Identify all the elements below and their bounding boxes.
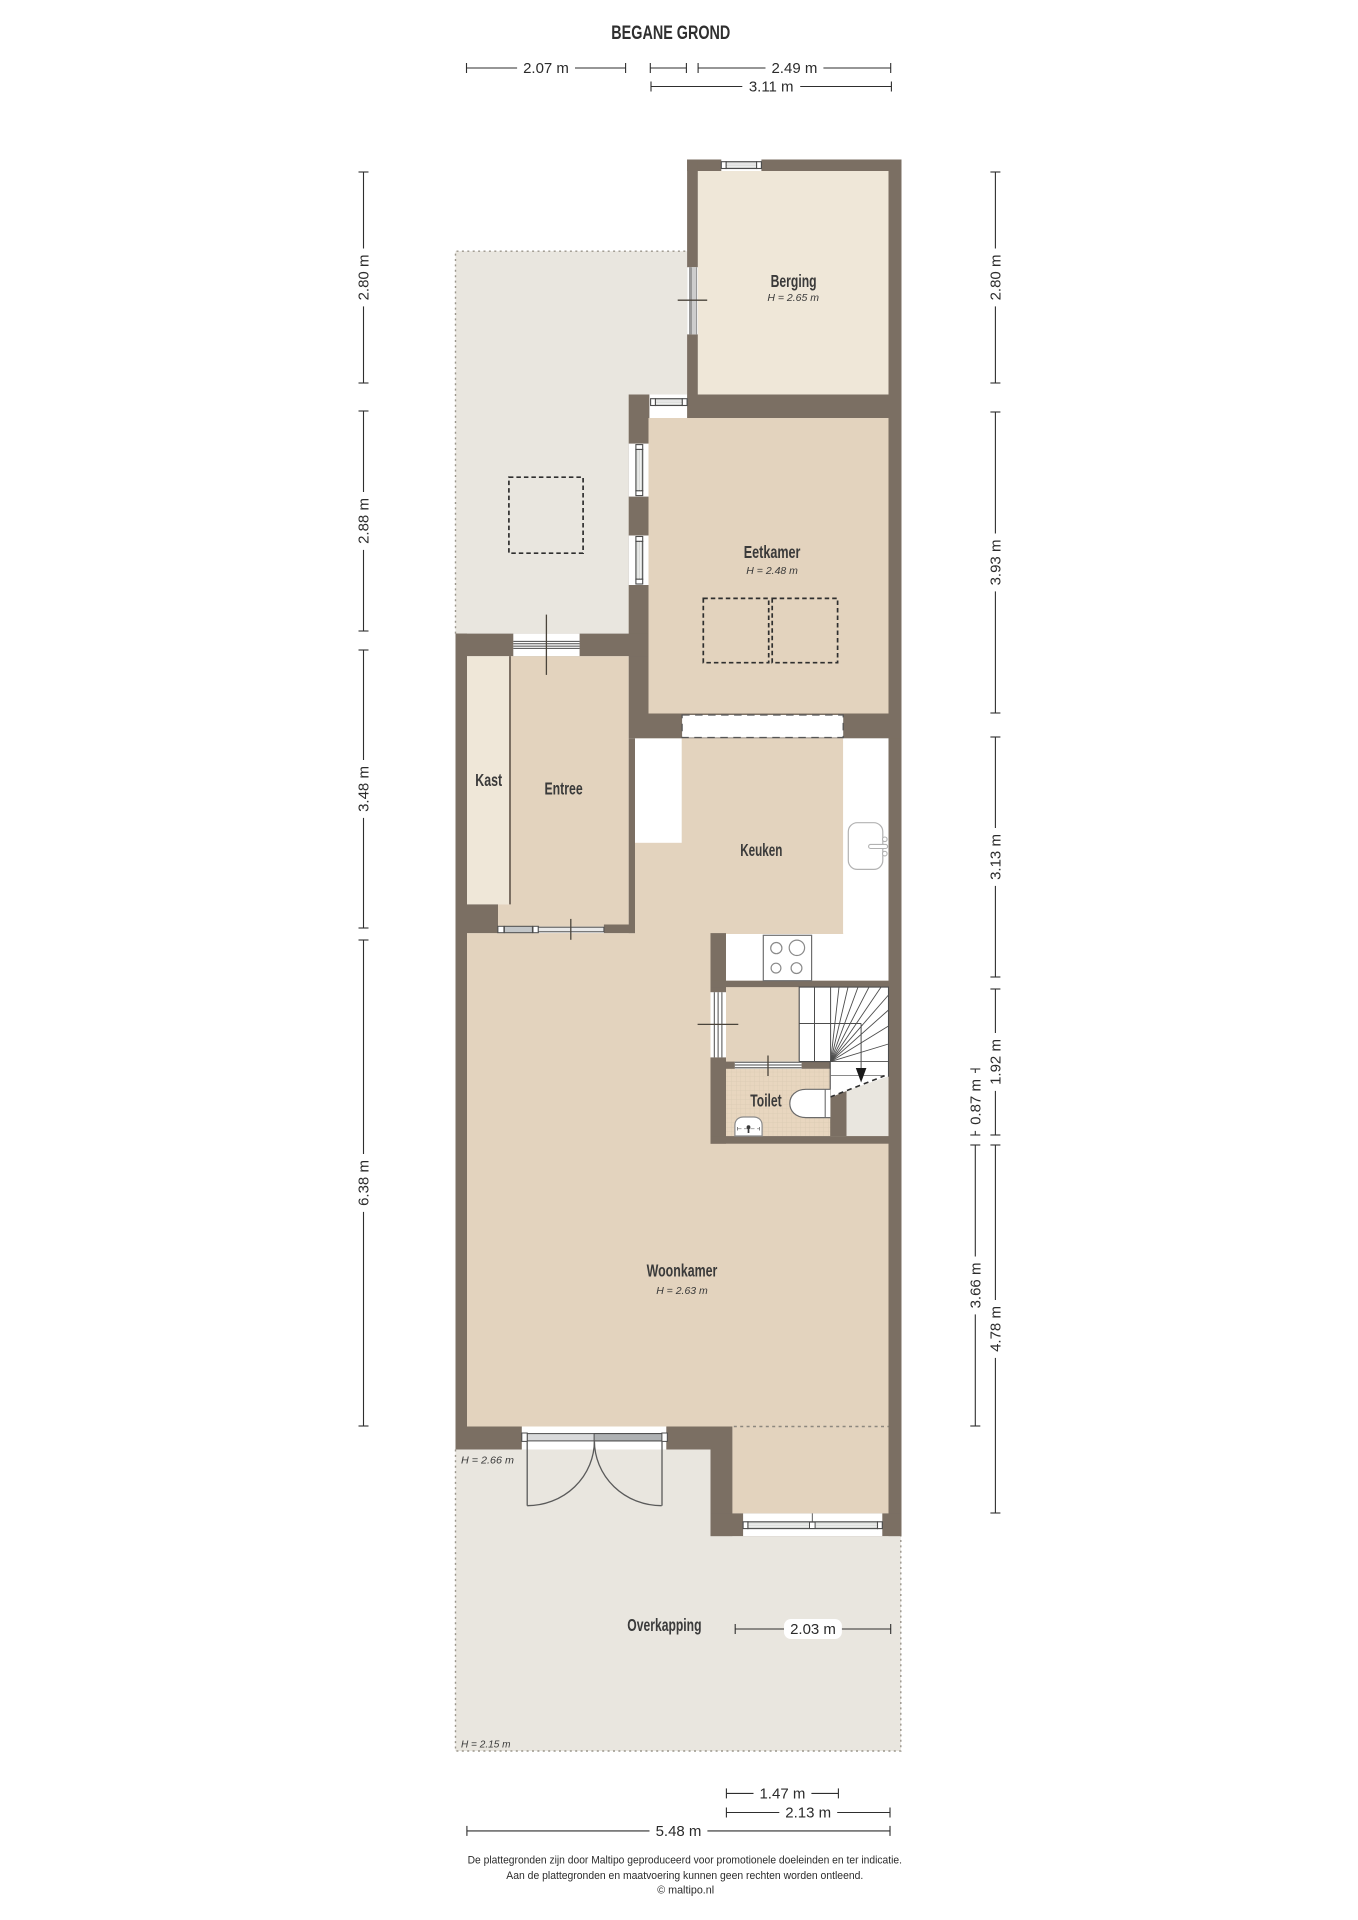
svg-text:2.49 m: 2.49 m	[771, 60, 817, 77]
svg-text:3.11 m: 3.11 m	[749, 79, 794, 96]
svg-text:Overkapping: Overkapping	[627, 1615, 701, 1635]
svg-text:3.66 m: 3.66 m	[968, 1263, 985, 1309]
svg-text:H = 2.63 m: H = 2.63 m	[656, 1285, 708, 1297]
svg-text:2.88 m: 2.88 m	[356, 498, 373, 544]
svg-text:2.80 m: 2.80 m	[356, 255, 373, 301]
svg-text:2.07 m: 2.07 m	[523, 60, 569, 77]
svg-text:3.93 m: 3.93 m	[988, 540, 1005, 586]
svg-text:1.92 m: 1.92 m	[988, 1039, 1005, 1085]
svg-text:Eetkamer: Eetkamer	[744, 542, 801, 562]
svg-text:0.87 m: 0.87 m	[968, 1079, 985, 1125]
svg-text:2.13 m: 2.13 m	[785, 1805, 831, 1822]
svg-text:3.48 m: 3.48 m	[356, 766, 373, 812]
svg-text:H = 2.48 m: H = 2.48 m	[746, 565, 798, 577]
svg-text:Aan de plattegronden en maatvo: Aan de plattegronden en maatvoering kunn…	[506, 1870, 863, 1882]
svg-text:H = 2.15 m: H = 2.15 m	[461, 1739, 511, 1751]
svg-text:5.48 m: 5.48 m	[656, 1823, 702, 1840]
svg-text:Keuken: Keuken	[740, 840, 782, 860]
svg-text:3.13 m: 3.13 m	[988, 834, 1005, 880]
svg-text:4.78 m: 4.78 m	[988, 1306, 1005, 1352]
svg-text:1.47 m: 1.47 m	[759, 1786, 805, 1803]
svg-text:6.38 m: 6.38 m	[356, 1160, 373, 1206]
svg-text:2.80 m: 2.80 m	[988, 255, 1005, 301]
svg-text:2.03 m: 2.03 m	[790, 1621, 836, 1638]
svg-text:H = 2.65 m: H = 2.65 m	[767, 292, 819, 304]
svg-text:Entree: Entree	[545, 778, 583, 798]
svg-text:Berging: Berging	[771, 271, 817, 291]
svg-text:Woonkamer: Woonkamer	[647, 1261, 718, 1281]
svg-text:De plattegronden zijn door Mal: De plattegronden zijn door Maltipo gepro…	[468, 1855, 902, 1867]
svg-text:H = 2.66 m: H = 2.66 m	[461, 1455, 514, 1467]
svg-text:Kast: Kast	[475, 770, 502, 790]
svg-text:© maltipo.nl: © maltipo.nl	[657, 1885, 714, 1897]
svg-text:Toilet: Toilet	[750, 1091, 782, 1111]
svg-text:BEGANE GROND: BEGANE GROND	[611, 23, 730, 44]
